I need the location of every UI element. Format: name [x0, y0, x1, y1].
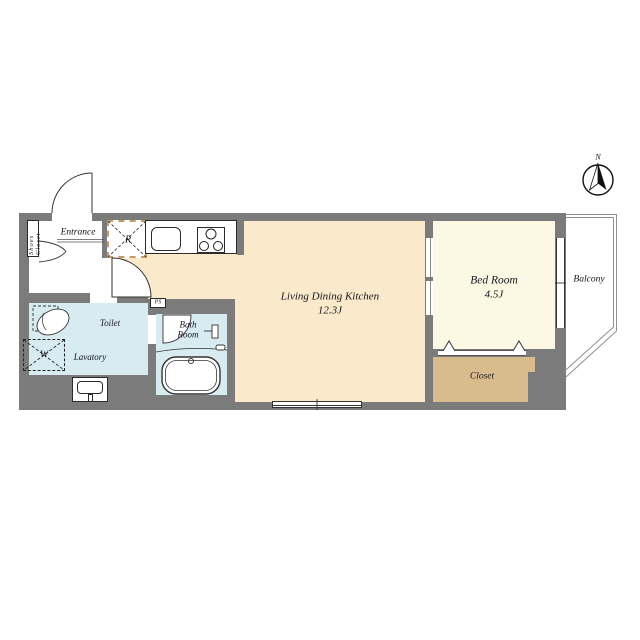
- sliding-door-panel-1: [426, 238, 433, 277]
- kitchen-sink: [151, 227, 181, 251]
- entrance-door-opening: [52, 213, 92, 221]
- balcony-label: Balcony: [573, 275, 604, 286]
- floorplan-canvas: { "colors": { "wall": "#7b7b7b", "ldk_fl…: [0, 0, 640, 640]
- hall-toilet-wall-left: [29, 293, 90, 303]
- bathroom-label: Bath Room: [178, 320, 199, 341]
- bedroom-label: Bed Room: [470, 274, 518, 287]
- bathroom-door-gap: [148, 315, 156, 344]
- top-wall: [19, 213, 566, 221]
- ldk-label: Living Dining Kitchen: [281, 291, 379, 304]
- bedroom-size-label: 4.5J: [485, 289, 504, 302]
- washbasin-stem: [88, 394, 93, 402]
- entrance-door-arc: [52, 173, 92, 213]
- stove: [197, 227, 225, 253]
- bathroom-label-line1: Bath: [180, 320, 197, 330]
- toilet-door-opening: [90, 294, 117, 303]
- washer-label: W: [40, 349, 48, 361]
- closet-step-wall: [528, 372, 535, 402]
- refrigerator-label: R: [125, 234, 131, 246]
- bedroom-window: [556, 238, 565, 328]
- balcony-outline: [563, 215, 617, 378]
- hall-corridor-floor: [102, 258, 112, 297]
- closet-door-track: [438, 350, 526, 356]
- pipe-space-label: PS: [155, 300, 162, 307]
- ldk-window: [272, 401, 362, 408]
- hall-toilet-wall-right: [117, 293, 148, 303]
- toilet-label: Toilet: [100, 318, 120, 328]
- bathroom-label-line2: Room: [178, 330, 199, 340]
- kitchen-end-wall: [237, 221, 244, 255]
- lavatory-label: Lavatory: [74, 352, 107, 362]
- washbasin-bowl: [77, 381, 103, 394]
- closet-label: Closet: [470, 372, 494, 383]
- shoes-closet-label: Shoes Closet: [28, 223, 42, 255]
- compass-icon: [583, 163, 613, 195]
- ldk-size-label: 12.3J: [318, 305, 342, 318]
- compass-north-label: N: [595, 152, 600, 161]
- entrance-label: Entrance: [61, 228, 96, 239]
- sliding-door-panel-2: [426, 281, 433, 315]
